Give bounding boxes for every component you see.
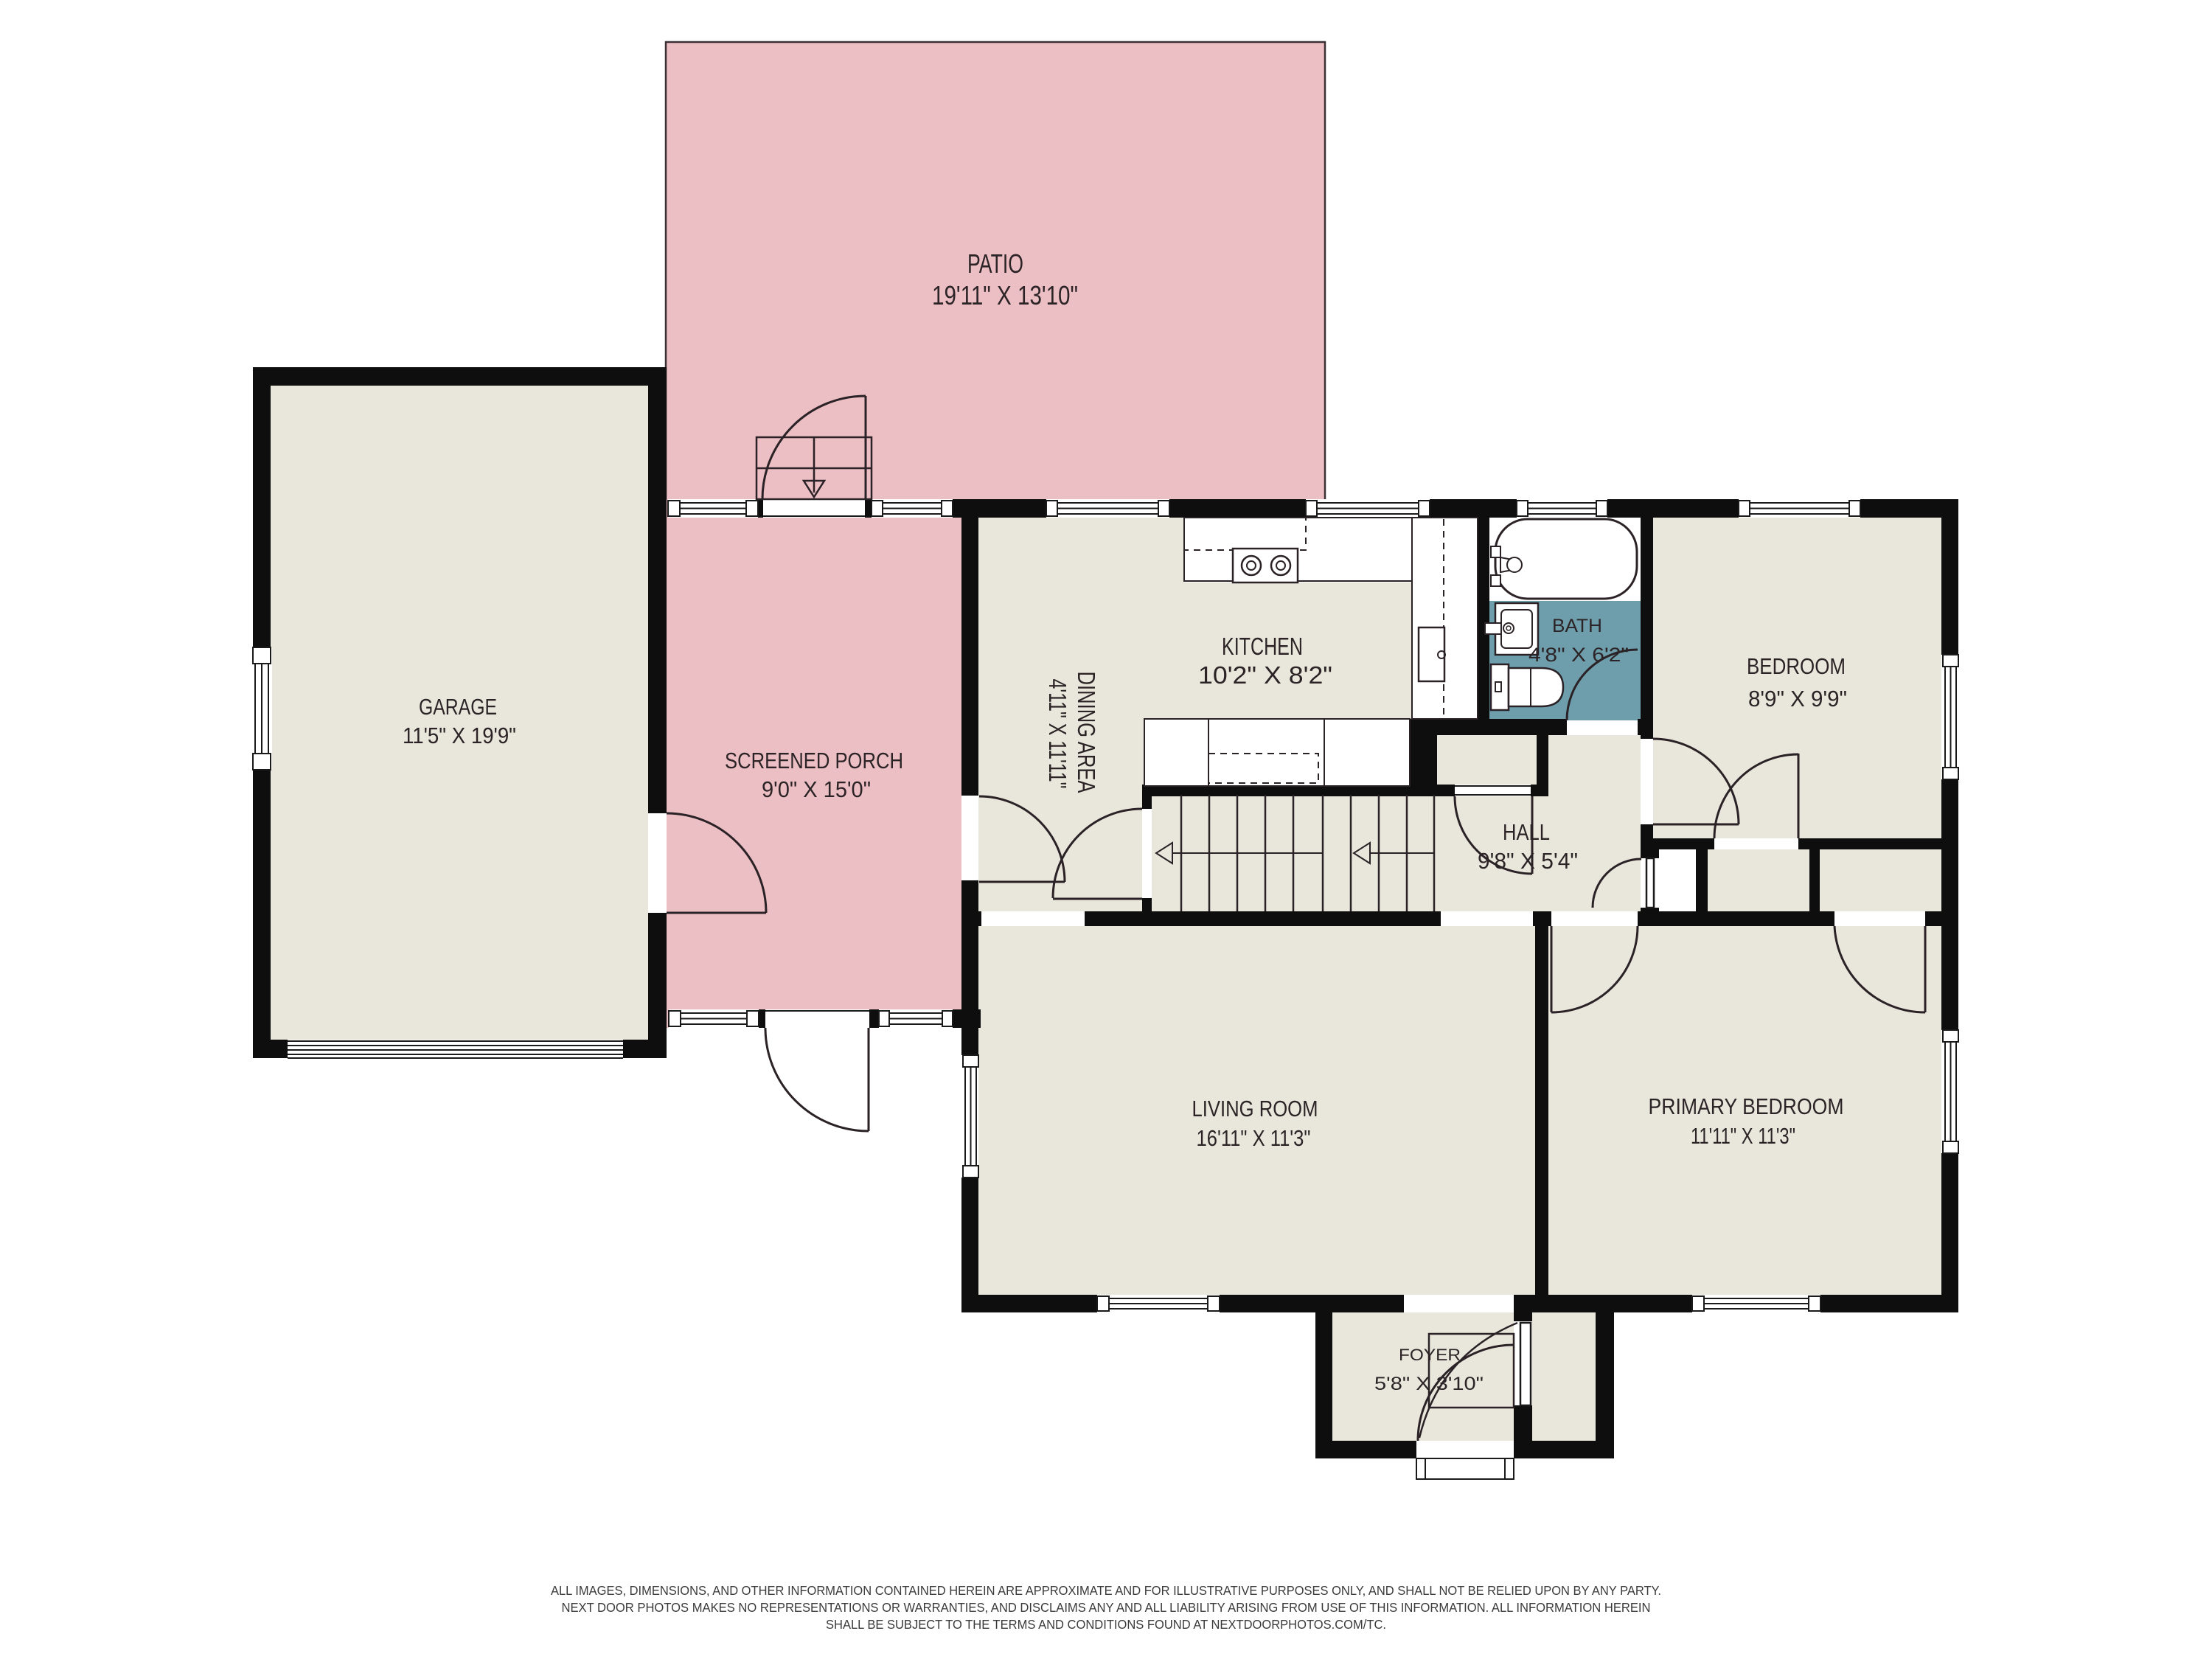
svg-text:8'9" X 9'9": 8'9" X 9'9" [1748, 686, 1847, 712]
svg-text:PRIMARY BEDROOM: PRIMARY BEDROOM [1649, 1093, 1844, 1119]
svg-text:4'11" X 11'11": 4'11" X 11'11" [1044, 679, 1071, 789]
svg-text:16'11" X 11'3": 16'11" X 11'3" [1197, 1125, 1311, 1151]
svg-text:FOYER: FOYER [1399, 1346, 1461, 1364]
svg-text:SCREENED PORCH: SCREENED PORCH [725, 748, 903, 773]
svg-text:HALL: HALL [1503, 819, 1550, 845]
svg-text:19'11" X 13'10": 19'11" X 13'10" [932, 280, 1078, 310]
svg-text:9'8" X 5'4": 9'8" X 5'4" [1478, 848, 1578, 874]
svg-text:11'5" X 19'9": 11'5" X 19'9" [403, 723, 516, 748]
svg-text:LIVING ROOM: LIVING ROOM [1192, 1096, 1318, 1121]
svg-text:4'8" X 6'2": 4'8" X 6'2" [1528, 644, 1629, 666]
svg-text:10'2" X 8'2": 10'2" X 8'2" [1198, 661, 1332, 689]
svg-text:BEDROOM: BEDROOM [1747, 653, 1846, 679]
svg-text:ALL IMAGES, DIMENSIONS, AND OT: ALL IMAGES, DIMENSIONS, AND OTHER INFORM… [551, 1583, 1661, 1598]
svg-text:DINING AREA: DINING AREA [1073, 672, 1100, 793]
svg-text:11'11" X 11'3": 11'11" X 11'3" [1691, 1123, 1795, 1149]
svg-text:5'8" X 3'10": 5'8" X 3'10" [1374, 1374, 1484, 1394]
svg-text:GARAGE: GARAGE [419, 694, 497, 720]
svg-text:SHALL BE SUBJECT TO THE TERMS: SHALL BE SUBJECT TO THE TERMS AND CONDIT… [826, 1617, 1386, 1632]
svg-text:KITCHEN: KITCHEN [1222, 633, 1303, 660]
svg-text:BATH: BATH [1552, 616, 1602, 636]
svg-text:PATIO: PATIO [967, 248, 1023, 279]
svg-text:NEXT DOOR PHOTOS MAKES NO REPR: NEXT DOOR PHOTOS MAKES NO REPRESENTATION… [562, 1600, 1651, 1615]
svg-text:9'0" X 15'0": 9'0" X 15'0" [762, 776, 871, 802]
